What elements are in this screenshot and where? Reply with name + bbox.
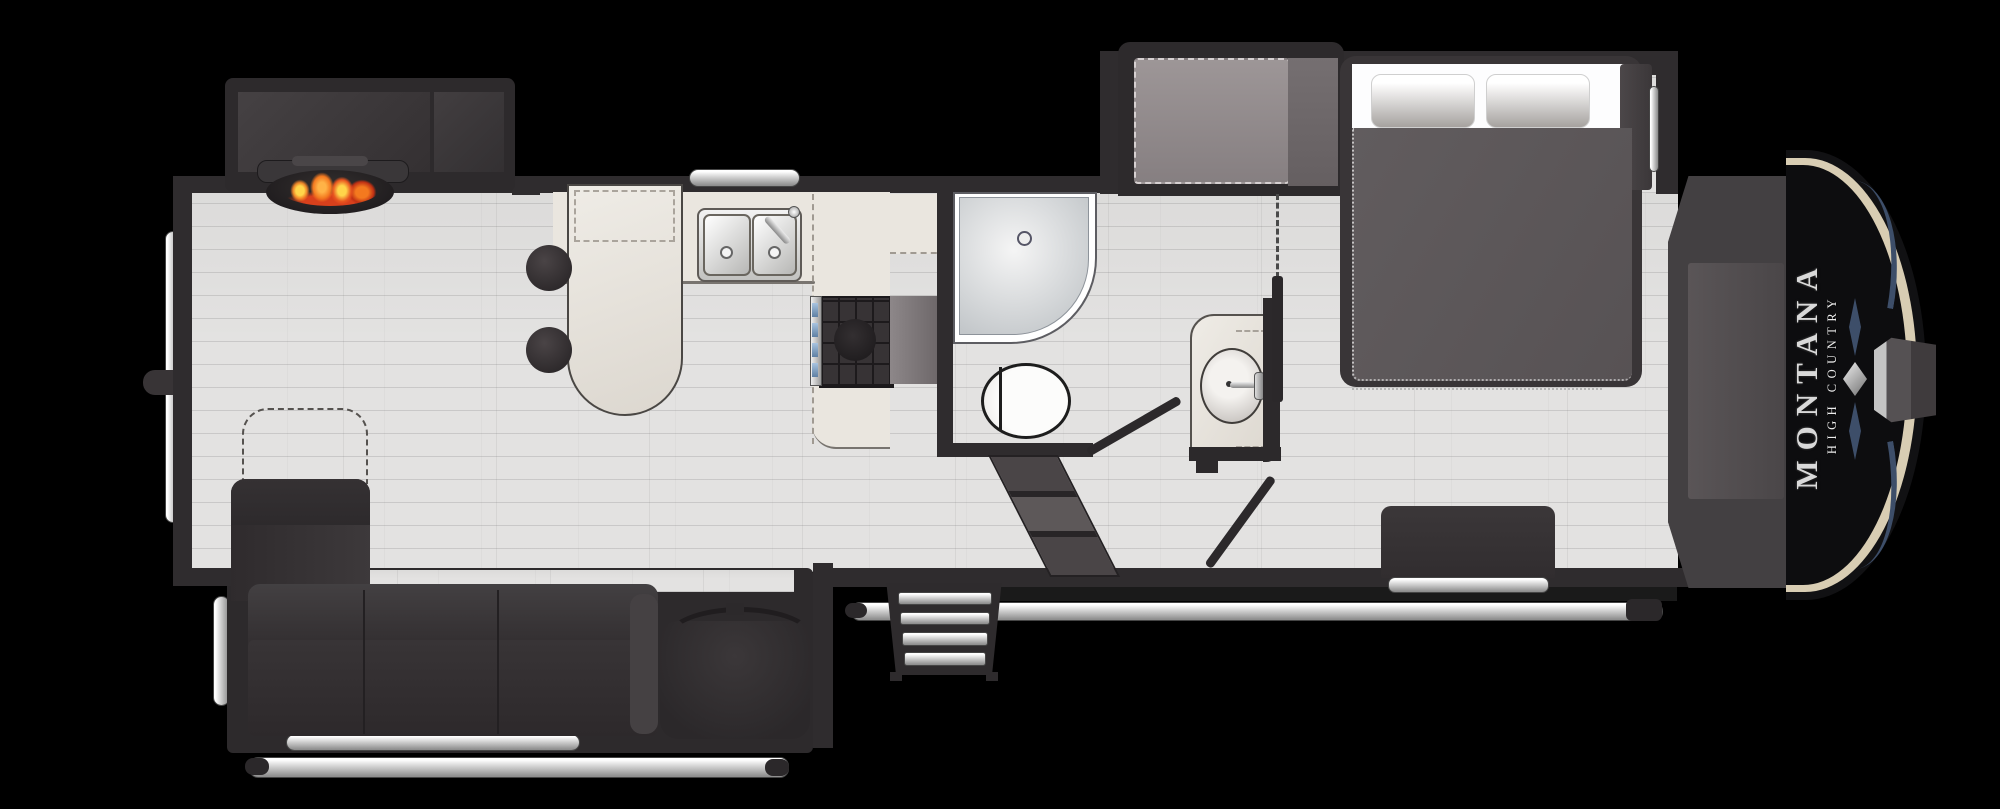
oven-glass-4 [812,363,818,377]
stove-burner [834,319,876,361]
sofa-chaise-back [231,479,370,525]
step-foot-right [986,672,998,681]
wardrobe-slide-inner [1134,58,1290,184]
fireplace-handle [292,156,368,166]
entry-corner-wall [813,563,833,748]
hitch-pin [1874,336,1936,424]
outer-rail-left-cap [245,758,269,775]
awning-rail-left-cap [845,603,867,618]
oven-glass-2 [812,323,818,337]
step-foot-left [890,672,902,681]
vanity-privacy-wall-bottom [1189,447,1281,461]
sofa-armrest-right [630,594,658,734]
sofa-divider-2 [497,590,499,734]
under-body-shadow [997,587,1677,601]
sofa-divider-1 [363,590,365,734]
sink-faucet-base [788,206,800,218]
bed-foot-dotted-line [1352,388,1602,390]
step-tread-4 [904,652,986,666]
compartment-handle [1388,577,1549,593]
sofa-back [248,584,658,644]
sink-bowl-left [703,214,751,276]
toilet-seam [999,367,1002,430]
fireplace-flames [280,172,380,206]
pillow-right [1486,74,1590,128]
slidebox-right-stub [512,178,540,195]
bedroom-right-jog [1656,51,1678,194]
brand-line2: HIGH COUNTRY [1825,204,1840,544]
bedroom-door-leaf [1272,276,1283,402]
accent-chair-back-arc [666,607,814,669]
nightstand-handle [1649,86,1659,172]
left-wall [173,176,192,586]
ottoman-outline [242,408,368,484]
brand-line1: MONTANA [1791,204,1822,544]
toilet [981,363,1071,439]
step-tread-2 [900,612,990,625]
brand-logo: MONTANA HIGH COUNTRY [1791,204,1845,544]
sofa-seats [248,640,658,736]
vanity-wall-foot [1196,461,1218,473]
wardrobe-cabinet [1288,58,1338,186]
dresser [1381,506,1555,578]
oven-glass-3 [812,343,818,357]
sink-drain-right [768,246,781,259]
shower-drain [1017,231,1032,246]
floorplan-stage: MONTANA HIGH COUNTRY [0,0,2000,809]
sink-drain-left [720,246,733,259]
step-tread-3 [902,632,988,646]
sofa-slide-inner-rail [286,734,580,751]
vanity-faucet [1230,382,1256,388]
step-tread-1 [898,592,992,605]
kitchen-window [689,169,800,187]
oven-glass-1 [812,303,818,317]
tv-console-right-panel [434,92,504,172]
comforter [1352,128,1632,381]
peninsula-overhang-dash [574,190,675,242]
refrigerator-cabinet [890,296,937,384]
bedroom-door-opening-dash [1276,194,1279,278]
accent-chair-notch [726,603,744,615]
outer-rail-right-cap [765,759,789,776]
pillow-left [1371,74,1475,128]
bar-stool-2 [526,327,572,373]
awning-rail-right-cap [1626,599,1662,621]
bar-stool-1 [526,245,572,291]
bottom-wall-left-stub [173,568,235,586]
bathroom-left-wall [937,192,953,457]
front-storage-panel [1688,263,1784,499]
sofa-slide-outer-rail [249,757,789,778]
